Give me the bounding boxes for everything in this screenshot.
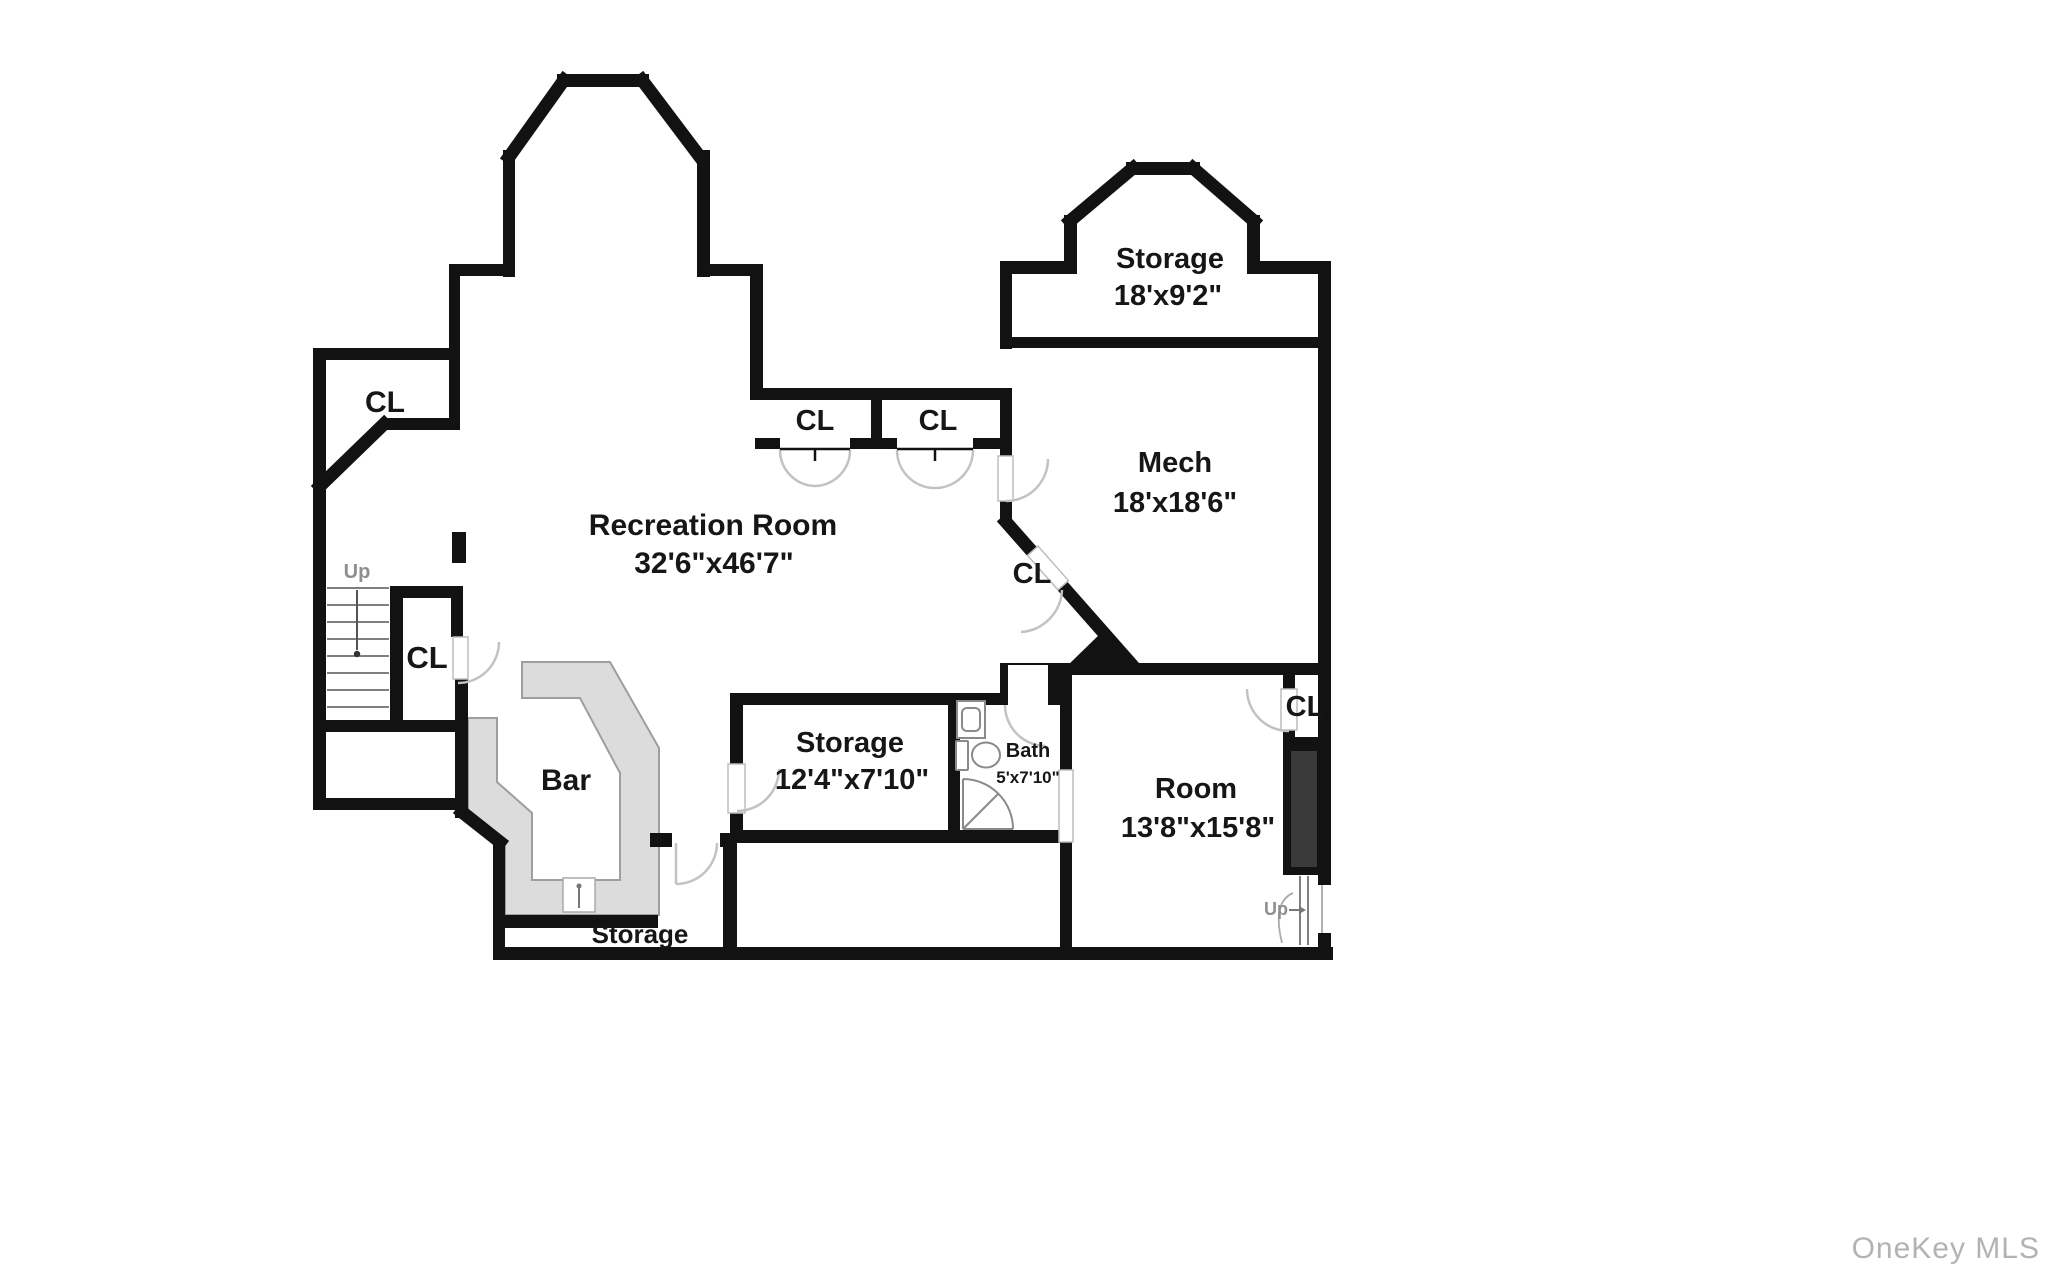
room-dims-mech: 18'x18'6" <box>1113 487 1237 519</box>
room-dims-room: 13'8"x15'8" <box>1121 812 1275 844</box>
room-label-room: Room <box>1155 773 1237 805</box>
toilet-bowl <box>972 743 1000 768</box>
stairs-direction-dot <box>354 651 360 657</box>
room-dims-bath: 5'x7'10" <box>996 768 1059 787</box>
up-arrow <box>1289 906 1306 914</box>
room-label-bath: Bath <box>1006 740 1050 762</box>
strip-door-arc <box>676 843 717 884</box>
stairs-main <box>327 588 389 707</box>
floor-plan-page: Recreation Room 32'6"x46'7" Storage 18'x… <box>0 0 2048 1277</box>
bath-fixtures <box>956 701 1013 829</box>
chimney-box <box>1283 743 1325 875</box>
closet-label-mid-right: CL <box>919 405 958 437</box>
closet-label-topleft: CL <box>365 386 405 419</box>
wall-triangle <box>1065 631 1140 668</box>
room-label-storage-upper: Storage <box>1116 243 1224 275</box>
up-label-stairs-secondary: Up <box>1264 899 1288 919</box>
room-label-bar: Bar <box>541 764 591 797</box>
bifold-door-left-arc1 <box>780 450 815 486</box>
bar-sink-fitting <box>577 884 582 889</box>
room-label-storage-mid: Storage <box>796 727 904 759</box>
bifold-door-left-arc2 <box>815 450 850 486</box>
room-dims-storage-mid: 12'4"x7'10" <box>775 764 929 796</box>
bifold-door-right-arc1 <box>897 450 935 488</box>
bifold-door-right-arc2 <box>935 450 973 488</box>
up-label-stairs-main: Up <box>344 561 371 583</box>
shower-panel-2 <box>963 794 998 829</box>
toilet-tank <box>956 741 968 770</box>
closet-label-mid-left: CL <box>796 405 835 437</box>
diag-closet-door-arc <box>1021 590 1062 632</box>
bifold-door-headers <box>780 449 973 461</box>
room-dims-recreation: 32'6"x46'7" <box>634 547 794 580</box>
floor-plan-drawing: Recreation Room 32'6"x46'7" Storage 18'x… <box>0 0 2048 1277</box>
room-dims-storage-upper: 18'x9'2" <box>1114 280 1222 312</box>
vanity-basin <box>962 708 980 731</box>
watermark: OneKey MLS <box>1852 1232 2040 1265</box>
room-label-storage-bottom: Storage <box>592 919 689 949</box>
column-post <box>452 532 466 563</box>
closet-label-diagonal: CL <box>1013 558 1052 590</box>
closet-label-stairs: CL <box>406 640 447 675</box>
room-label-mech: Mech <box>1138 447 1212 479</box>
room-label-recreation: Recreation Room <box>589 509 837 542</box>
closet-label-room: CL <box>1286 691 1325 723</box>
